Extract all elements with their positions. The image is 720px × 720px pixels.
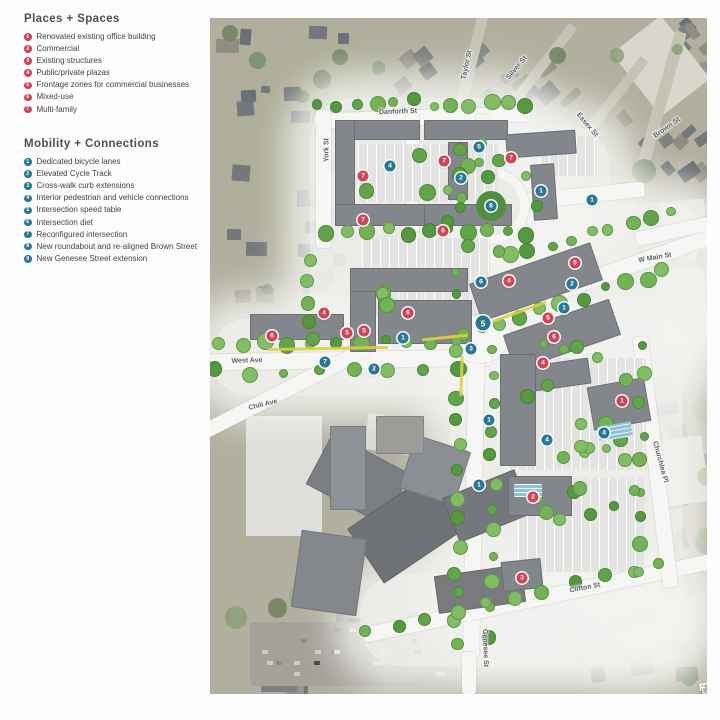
proposed-building bbox=[335, 204, 430, 226]
map-marker-red-6: 6 bbox=[438, 226, 449, 237]
aerial-house bbox=[534, 80, 560, 106]
tree bbox=[626, 216, 641, 231]
tree bbox=[632, 536, 648, 552]
tree bbox=[480, 597, 491, 608]
tree bbox=[485, 426, 497, 438]
plan-road bbox=[462, 652, 476, 694]
map-marker-blue-7: 7 bbox=[320, 357, 331, 368]
legend-places-title: Places + Spaces bbox=[24, 13, 206, 25]
tree bbox=[632, 452, 647, 467]
tree bbox=[587, 226, 597, 236]
mobility-item-1: 1Dedicated bicycle lanes bbox=[24, 158, 206, 167]
map-marker-blue-3: 3 bbox=[466, 344, 477, 355]
hospital-building bbox=[291, 530, 367, 616]
tree bbox=[330, 101, 342, 113]
map-marker-blue-1: 1 bbox=[587, 195, 598, 206]
map-marker-red-6: 6 bbox=[267, 331, 278, 342]
proposed-building bbox=[500, 354, 536, 466]
tree bbox=[570, 340, 584, 354]
tree bbox=[609, 501, 618, 510]
mobility-item-label: Elevated Cycle Track bbox=[37, 170, 112, 179]
map-marker-red-3: 3 bbox=[517, 573, 528, 584]
legend-number-badge: 8 bbox=[24, 243, 32, 251]
tree bbox=[575, 418, 587, 430]
tree bbox=[617, 273, 634, 290]
aerial-tree bbox=[222, 25, 238, 41]
tree bbox=[487, 345, 496, 354]
aerial-house bbox=[216, 39, 239, 53]
tree bbox=[534, 585, 549, 600]
tree bbox=[451, 464, 463, 476]
tree bbox=[520, 389, 535, 404]
aerial-tree bbox=[697, 527, 707, 544]
aerial-tree bbox=[692, 399, 707, 422]
tree bbox=[486, 522, 501, 537]
aerial-house bbox=[291, 110, 311, 123]
legend-number-badge: 2 bbox=[24, 45, 32, 53]
legend-number-badge: 6 bbox=[24, 94, 32, 102]
mobility-item-label: Cross-walk curb extensions bbox=[37, 182, 135, 191]
tree bbox=[388, 97, 398, 107]
site-plan-page: Places + Spaces 1Renovated existing offi… bbox=[0, 0, 720, 720]
mobility-item-4: 4Interior pedestrian and vehicle connect… bbox=[24, 194, 206, 203]
tree bbox=[452, 289, 461, 298]
mobility-item-label: Intersection speed table bbox=[37, 206, 122, 215]
places-item-label: Commercial bbox=[37, 45, 80, 54]
aerial-house bbox=[239, 28, 251, 45]
tree bbox=[461, 239, 475, 253]
places-item-label: Multi-family bbox=[37, 106, 77, 115]
places-item-label: Frontage zones for commercial businesses bbox=[37, 81, 190, 90]
places-item-5: 5Frontage zones for commercial businesse… bbox=[24, 81, 206, 90]
aerial-tree bbox=[249, 52, 266, 69]
mobility-item-9: 9New Genesee Street extension bbox=[24, 255, 206, 264]
map-marker-red-1: 1 bbox=[617, 396, 628, 407]
places-item-label: Mixed-use bbox=[37, 93, 74, 102]
mobility-item-6: 6Intersection diet bbox=[24, 219, 206, 228]
aerial-house bbox=[237, 100, 255, 116]
map-marker-blue-1: 1 bbox=[559, 303, 570, 314]
tree bbox=[451, 268, 460, 277]
map-marker-red-4: 4 bbox=[538, 358, 549, 369]
street-label: York St bbox=[324, 138, 331, 162]
tree bbox=[517, 98, 533, 114]
tree bbox=[483, 448, 495, 460]
tree bbox=[484, 574, 500, 590]
legend-mobility-title: Mobility + Connections bbox=[24, 138, 206, 150]
map-marker-red-4: 4 bbox=[319, 308, 330, 319]
parked-car bbox=[262, 650, 268, 654]
map-marker-blue-1: 1 bbox=[474, 480, 485, 491]
tree bbox=[493, 245, 506, 258]
map-marker-red-7: 7 bbox=[506, 153, 517, 164]
tree bbox=[492, 154, 505, 167]
tree bbox=[312, 99, 322, 109]
aerial-house bbox=[241, 89, 257, 102]
map-marker-blue-6: 6 bbox=[476, 277, 487, 288]
tree bbox=[518, 227, 534, 243]
site-plan-map: FISHERF ASSOCIATES Danforth StYork StTay… bbox=[210, 18, 707, 694]
tree bbox=[443, 185, 453, 195]
places-item-label: Public/private plazas bbox=[37, 69, 110, 78]
legend-number-badge: 7 bbox=[24, 106, 32, 114]
places-item-label: Existing structures bbox=[37, 57, 102, 66]
tree bbox=[379, 297, 395, 313]
map-marker-blue-4: 4 bbox=[599, 428, 610, 439]
parked-car bbox=[349, 628, 355, 632]
tree bbox=[566, 236, 577, 247]
aerial-house bbox=[559, 87, 581, 108]
tree bbox=[380, 363, 395, 378]
tree bbox=[418, 613, 431, 626]
tree bbox=[602, 224, 613, 235]
street-label: West Ave bbox=[231, 357, 262, 365]
map-marker-blue-8: 8 bbox=[486, 201, 497, 212]
tree bbox=[577, 293, 591, 307]
places-item-2: 2Commercial bbox=[24, 45, 206, 54]
map-marker-blue-1: 1 bbox=[398, 333, 409, 344]
places-item-6: 6Mixed-use bbox=[24, 93, 206, 102]
map-marker-red-2: 2 bbox=[528, 492, 539, 503]
mobility-item-label: Intersection diet bbox=[37, 219, 93, 228]
tree bbox=[666, 207, 675, 216]
legend-number-badge: 5 bbox=[24, 207, 32, 215]
mobility-item-label: New Genesee Street extension bbox=[37, 255, 148, 264]
tree bbox=[407, 92, 421, 106]
tree bbox=[412, 148, 427, 163]
tree bbox=[393, 620, 406, 633]
mobility-item-2: 2Elevated Cycle Track bbox=[24, 170, 206, 179]
map-marker-red-5: 5 bbox=[570, 258, 581, 269]
parked-car bbox=[373, 661, 379, 665]
tree bbox=[508, 591, 523, 606]
tree bbox=[629, 485, 640, 496]
map-marker-blue-2: 2 bbox=[369, 364, 380, 375]
map-marker-blue-2: 2 bbox=[456, 173, 467, 184]
places-item-7: 7Multi-family bbox=[24, 106, 206, 115]
aerial-tree bbox=[632, 159, 656, 183]
legend-number-badge: 6 bbox=[24, 219, 32, 227]
tree bbox=[359, 223, 375, 239]
mobility-item-3: 3Cross-walk curb extensions bbox=[24, 182, 206, 191]
places-item-1: 1Renovated existing office building bbox=[24, 33, 206, 42]
map-marker-blue-5: 5 bbox=[474, 142, 485, 153]
tree bbox=[447, 567, 461, 581]
map-marker-red-6: 6 bbox=[549, 332, 560, 343]
tree bbox=[539, 505, 554, 520]
tree bbox=[453, 587, 463, 597]
tree bbox=[490, 478, 503, 491]
parked-car bbox=[276, 661, 282, 665]
street-label: Genesee St bbox=[481, 629, 489, 667]
hospital-building bbox=[330, 426, 366, 510]
tree bbox=[453, 540, 468, 555]
map-marker-red-7: 7 bbox=[358, 171, 369, 182]
map-marker-red-6: 6 bbox=[403, 308, 414, 319]
parked-car bbox=[294, 672, 300, 676]
tree bbox=[619, 373, 633, 387]
tree bbox=[461, 99, 476, 114]
tree bbox=[489, 552, 498, 561]
aerial-house bbox=[694, 128, 707, 148]
tree bbox=[210, 361, 222, 376]
places-item-3: 3Existing structures bbox=[24, 57, 206, 66]
hospital-building bbox=[376, 416, 424, 454]
map-marker-blue-4: 4 bbox=[385, 161, 396, 172]
legend-mobility-section: Mobility + Connections 1Dedicated bicycl… bbox=[24, 138, 206, 263]
tree bbox=[574, 440, 587, 453]
tree bbox=[487, 504, 498, 515]
proposed-building bbox=[424, 120, 508, 140]
parked-car bbox=[267, 661, 273, 665]
parked-car bbox=[294, 661, 300, 665]
mobility-item-5: 5Intersection speed table bbox=[24, 206, 206, 215]
legend-mobility-list: 1Dedicated bicycle lanes2Elevated Cycle … bbox=[24, 158, 206, 263]
legend-number-badge: 1 bbox=[24, 158, 32, 166]
parked-car bbox=[315, 650, 321, 654]
aerial-house bbox=[660, 160, 676, 176]
aerial-house bbox=[338, 33, 350, 44]
aerial-house bbox=[589, 665, 605, 682]
map-marker-blue-4: 4 bbox=[542, 435, 553, 446]
aerial-house bbox=[231, 164, 250, 181]
mobility-item-8: 8New roundabout and re-aligned Brown Str… bbox=[24, 243, 206, 252]
tree bbox=[450, 361, 467, 378]
map-marker-red-5: 5 bbox=[359, 326, 370, 337]
aerial-house bbox=[227, 229, 241, 240]
mobility-item-label: New roundabout and re-aligned Brown Stre… bbox=[37, 243, 198, 252]
parked-car bbox=[335, 628, 341, 632]
aerial-house bbox=[698, 42, 707, 56]
tree bbox=[449, 413, 462, 426]
legend-panel: Places + Spaces 1Renovated existing offi… bbox=[24, 13, 206, 267]
tree bbox=[318, 225, 334, 241]
aerial-tree bbox=[549, 47, 566, 64]
tree bbox=[474, 158, 483, 167]
mobility-item-label: Dedicated bicycle lanes bbox=[37, 158, 121, 167]
tree bbox=[381, 335, 390, 344]
tree bbox=[417, 364, 429, 376]
aerial-tree bbox=[225, 606, 248, 629]
tree bbox=[638, 341, 647, 350]
tree bbox=[592, 352, 603, 363]
tree bbox=[301, 296, 316, 311]
tree bbox=[383, 222, 395, 234]
legend-places-list: 1Renovated existing office building2Comm… bbox=[24, 33, 206, 114]
tree bbox=[519, 243, 535, 259]
tree bbox=[531, 200, 542, 211]
tree bbox=[279, 369, 288, 378]
legend-number-badge: 5 bbox=[24, 82, 32, 90]
places-item-4: 4Public/private plazas bbox=[24, 69, 206, 78]
map-marker-blue-5: 5 bbox=[476, 316, 491, 331]
tree bbox=[456, 192, 467, 203]
aerial-house bbox=[681, 124, 696, 139]
map-marker-red-7: 7 bbox=[358, 215, 369, 226]
parked-car bbox=[440, 672, 446, 676]
tree bbox=[341, 225, 354, 238]
street-label: Danforth St bbox=[379, 108, 417, 116]
map-marker-blue-1: 1 bbox=[536, 186, 547, 197]
map-marker-red-7: 7 bbox=[439, 156, 450, 167]
aerial-tree bbox=[610, 48, 624, 62]
aerial-house bbox=[308, 26, 326, 40]
tree bbox=[559, 344, 569, 354]
aerial-tree bbox=[268, 598, 287, 617]
tree bbox=[481, 170, 495, 184]
tree bbox=[480, 223, 494, 237]
tree bbox=[455, 202, 466, 213]
map-marker-blue-1: 1 bbox=[484, 415, 495, 426]
tree bbox=[451, 638, 464, 651]
places-item-label: Renovated existing office building bbox=[37, 33, 156, 42]
tree bbox=[640, 432, 649, 441]
aerial-tree bbox=[372, 61, 385, 74]
tree bbox=[306, 332, 319, 345]
tree bbox=[453, 143, 467, 157]
aerial-tree bbox=[296, 90, 309, 103]
legend-number-badge: 4 bbox=[24, 69, 32, 77]
legend-places-section: Places + Spaces 1Renovated existing offi… bbox=[24, 13, 206, 114]
tree bbox=[484, 94, 500, 110]
aerial-tree bbox=[332, 49, 349, 66]
tree bbox=[401, 227, 416, 242]
aerial-house bbox=[261, 86, 271, 94]
map-marker-red-5: 5 bbox=[543, 313, 554, 324]
aerial-house bbox=[234, 290, 251, 304]
tree bbox=[573, 481, 587, 495]
tree bbox=[451, 605, 466, 620]
mobility-item-label: Interior pedestrian and vehicle connecti… bbox=[37, 194, 189, 203]
legend-number-badge: 7 bbox=[24, 231, 32, 239]
map-marker-red-4: 4 bbox=[504, 276, 515, 287]
legend-number-badge: 4 bbox=[24, 195, 32, 203]
tree bbox=[450, 492, 465, 507]
parked-car bbox=[301, 639, 307, 643]
aerial-house bbox=[615, 109, 633, 128]
map-marker-blue-2: 2 bbox=[567, 279, 578, 290]
tree bbox=[503, 226, 513, 236]
legend-number-badge: 2 bbox=[24, 170, 32, 178]
mobility-item-7: 7Reconfigured intersection bbox=[24, 231, 206, 240]
legend-number-badge: 3 bbox=[24, 182, 32, 190]
tree bbox=[640, 272, 657, 289]
legend-number-badge: 3 bbox=[24, 57, 32, 65]
aerial-tree bbox=[313, 70, 332, 89]
map-marker-red-5: 5 bbox=[342, 328, 353, 339]
parked-car bbox=[314, 661, 320, 665]
tree bbox=[359, 183, 374, 198]
fisher-logo-subtitle: ASSOCIATES bbox=[699, 683, 707, 687]
parked-car bbox=[334, 650, 340, 654]
aerial-house bbox=[245, 241, 266, 256]
legend-number-badge: 1 bbox=[24, 33, 32, 41]
proposed-building bbox=[505, 130, 577, 159]
legend-number-badge: 9 bbox=[24, 255, 32, 263]
mobility-item-label: Reconfigured intersection bbox=[37, 231, 128, 240]
